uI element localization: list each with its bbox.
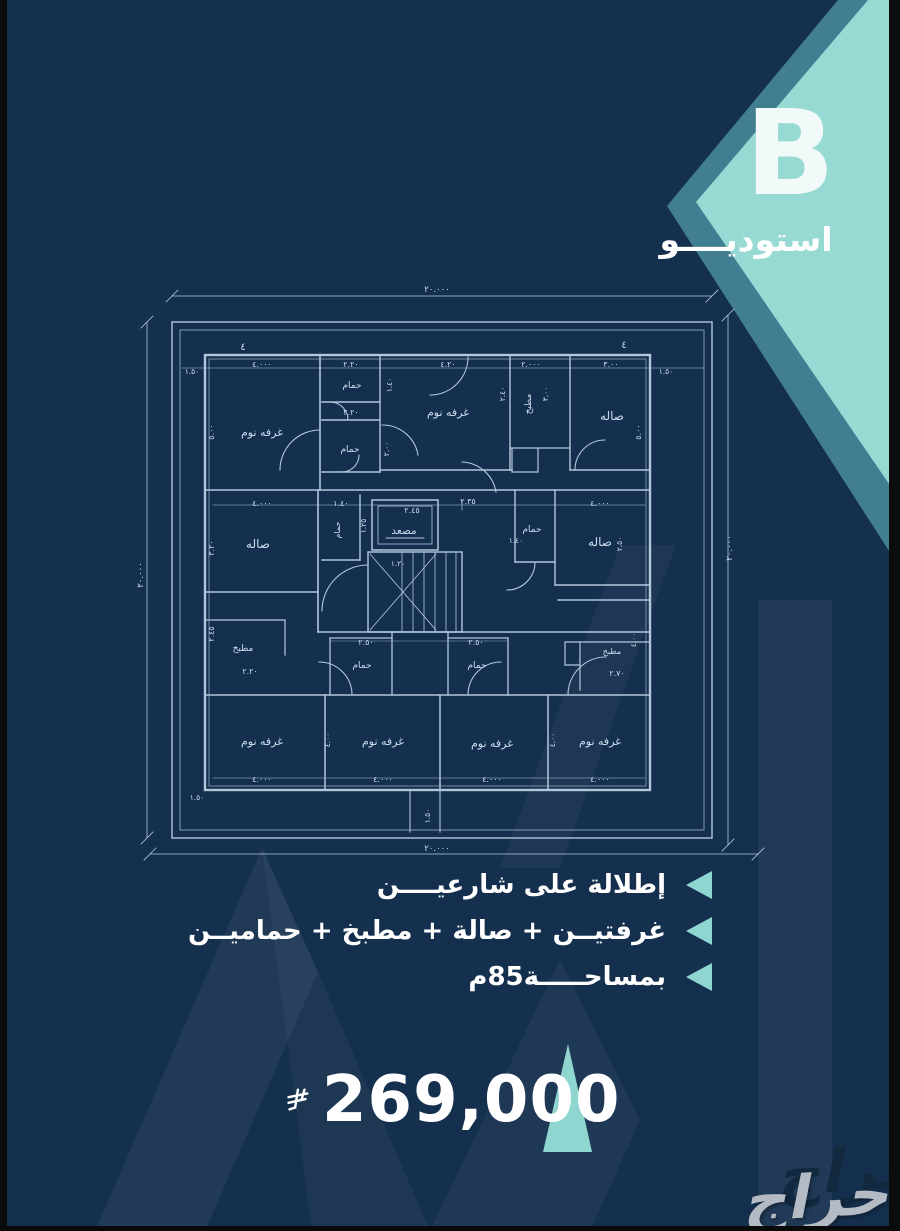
plan-text: ٣.٢٠ xyxy=(207,540,216,555)
plan-text: ٥.٠٠ xyxy=(634,424,643,439)
plan-text: ٢.٤٠ xyxy=(498,387,507,401)
plan-text: ٤.٠٠ xyxy=(629,633,638,647)
feature-row-rooms: غرفتيــن + صالة + مطبخ + حماميــن xyxy=(188,914,712,948)
plan-text: ٢٠.٠٠٠ xyxy=(725,535,735,561)
plan-text: ١.٥٠ xyxy=(423,809,432,823)
plan-text: مطبخ xyxy=(603,647,621,656)
plan-text: ٤.٠٠٠ xyxy=(252,360,272,369)
plan-text: غرفه نوم xyxy=(241,735,283,748)
plan-text: غرفه نوم xyxy=(241,426,283,439)
plan-text: صاله xyxy=(588,535,612,549)
plan-text: ١.٥٠ xyxy=(190,793,204,802)
plan-text: حمام xyxy=(467,661,486,671)
plan-text: ١.٤٠ xyxy=(333,499,348,508)
feature-row-area: بمساحـــــة85م xyxy=(188,960,712,994)
screen-edge-bottom xyxy=(0,1226,900,1231)
feature-text: إطلالة على شارعيــــن xyxy=(377,870,666,900)
plan-text: ٢.٤٥ xyxy=(404,506,419,515)
screen-edge-right xyxy=(889,0,900,1231)
plan-text: ٤.٠٠ xyxy=(548,733,557,747)
plan-text: ٢٠.٠٠٠ xyxy=(424,285,450,295)
plan-text: حمام xyxy=(342,381,361,391)
unit-letter: B xyxy=(730,94,850,212)
plan-text: ٤.٠٠٠ xyxy=(590,775,610,784)
plan-text: ٢.٥٠ xyxy=(358,638,373,647)
plan-text: ٣.٠٠ xyxy=(603,360,618,369)
plan-text: ٤ xyxy=(240,342,245,353)
plan-text: ٤.٠٠٠ xyxy=(482,775,502,784)
plan-text: ٤.٠٠ xyxy=(323,733,332,747)
plan-text: ١.٢٥ xyxy=(359,519,368,533)
plan-text: ٣.٠٠ xyxy=(541,387,550,401)
feature-text: بمساحـــــة85م xyxy=(468,962,666,992)
price: 269,000 xyxy=(282,1068,621,1132)
plan-text: ٢.٠٠٠ xyxy=(521,360,541,369)
plan-text: ١.٢٠ xyxy=(391,559,405,568)
plan-text: ٤.٠٠٠ xyxy=(373,775,393,784)
plan-text: غرفه نوم xyxy=(579,735,621,748)
bullet-triangle-icon xyxy=(686,963,712,991)
feature-text: غرفتيــن + صالة + مطبخ + حماميــن xyxy=(188,916,666,946)
price-amount: 269,000 xyxy=(322,1068,621,1132)
saudi-riyal-icon xyxy=(282,1085,312,1115)
unit-type-label: استوديــــو xyxy=(636,220,856,259)
plan-text: ٢.٧٠ xyxy=(609,669,624,678)
feature-row-streets: إطلالة على شارعيــــن xyxy=(188,868,712,902)
plan-text: حمام xyxy=(333,521,342,538)
plan-text: مطبخ xyxy=(233,644,254,654)
plan-text: ٢٠.٠٠٠ xyxy=(424,844,450,854)
plan-text: ٢.٥٠ xyxy=(468,638,483,647)
plan-text: حمام xyxy=(340,445,359,455)
plan-text: ٢.٠٠ xyxy=(382,442,391,456)
plan-text: ٤.٠٠٠ xyxy=(590,499,610,508)
plan-text: ٢.٥٠ xyxy=(615,537,624,551)
plan-text: ٢.٢٠ xyxy=(242,667,257,676)
plan-text: ٤.٢٠ xyxy=(440,360,455,369)
plan-text: ٤.٠٠٠ xyxy=(252,499,272,508)
plan-text: ٢.٢٠ xyxy=(343,408,358,417)
plan-text: مصعد xyxy=(391,525,416,537)
plan-text: غرفه نوم xyxy=(427,406,469,419)
plan-text: حمام xyxy=(352,661,371,671)
bullet-triangle-icon xyxy=(686,917,712,945)
plan-text: مطبخ xyxy=(524,393,534,414)
bullet-triangle-icon xyxy=(686,871,712,899)
plan-text: ٤.٠٠٠ xyxy=(252,775,272,784)
plan-text: ٢.٢٠ xyxy=(343,360,358,369)
plan-text: ١.٤٠ xyxy=(385,378,394,392)
plan-text: صاله xyxy=(600,409,624,423)
plan-text: ٤ xyxy=(621,340,626,351)
real-estate-flyer: غرفه نومحمامحمامغرفه نوممطبخصالهصالهحمام… xyxy=(0,0,900,1231)
plan-text: ٢.٣٥ xyxy=(460,497,475,506)
screen-edge-left xyxy=(0,0,7,1231)
plan-text: ٥.٠٠ xyxy=(207,424,216,439)
plan-text: غرفه نوم xyxy=(362,735,404,748)
feature-list: إطلالة على شارعيــــن غرفتيــن + صالة + … xyxy=(188,868,712,1006)
plan-text: حمام xyxy=(522,525,541,535)
plan-text: ٢٠.٠٠٠ xyxy=(136,562,146,588)
plan-text: ١.٥٠ xyxy=(185,367,199,376)
plan-text: ١.٥٠ xyxy=(659,367,673,376)
plan-text: ٢.٤٥ xyxy=(207,626,216,641)
plan-text: صاله xyxy=(246,537,270,551)
plan-text: غرفه نوم xyxy=(471,737,513,750)
plan-text: ١.٤٠ xyxy=(509,536,523,545)
haraj-watermark: حراج xyxy=(741,1163,899,1230)
